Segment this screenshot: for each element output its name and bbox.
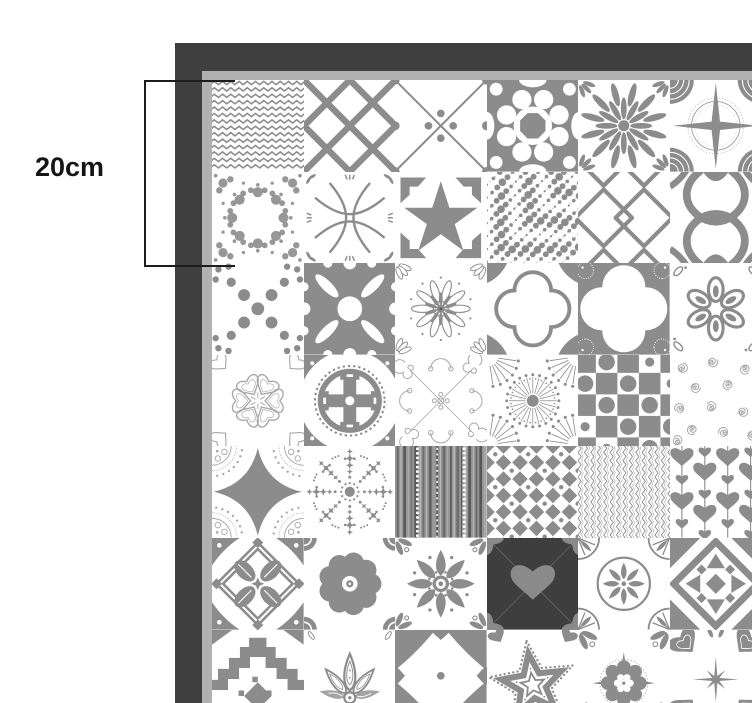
tile-star-ray-burst <box>304 446 396 538</box>
measurement-bracket <box>144 80 235 267</box>
tile-radial-dandelion <box>487 355 579 447</box>
tile-round-mandala <box>578 630 670 703</box>
tile-quatrefoil <box>487 263 579 355</box>
tile-ribbon-diamond <box>212 538 304 630</box>
tile-circle-kaleidoscope <box>487 80 579 172</box>
tile-bold-star <box>395 172 487 264</box>
tile-dark-heart <box>487 538 579 630</box>
tile-beaded-diagonals <box>487 172 579 264</box>
tile-curved-petal-cross <box>304 172 396 264</box>
measurement-label: 20cm <box>35 152 104 183</box>
tile-scattered-spirals <box>670 355 752 447</box>
tile-scalloped-flower <box>304 538 396 630</box>
tile-rosette-circle <box>578 538 670 630</box>
tile-petal-cross <box>578 263 670 355</box>
tile-sheet <box>212 80 752 703</box>
tile-loop-flower <box>670 263 752 355</box>
tile-stripe-barcode <box>395 446 487 538</box>
tile-diamond-lattice <box>304 80 396 172</box>
tile-diagonal-cross-dots <box>395 80 487 172</box>
tile-grid <box>212 80 752 703</box>
tile-ornate-diamond <box>212 446 304 538</box>
tile-compass-star <box>670 80 752 172</box>
tile-octagon-dot-grid <box>487 446 579 538</box>
tile-hanging-hearts <box>670 446 752 538</box>
tile-herringbone <box>578 446 670 538</box>
tile-double-diamond <box>578 172 670 264</box>
tile-hearts-sparkle <box>670 630 752 703</box>
tile-paisley-lily <box>304 630 396 703</box>
tile-flower-burst <box>395 263 487 355</box>
tile-geometric-diamond-star <box>670 538 752 630</box>
tile-checker-dots <box>578 355 670 447</box>
tile-arabesque-arch <box>212 630 304 703</box>
tile-petal-mandala <box>395 538 487 630</box>
product-illustration: 20cm <box>0 0 752 703</box>
tile-dotted-star <box>487 630 579 703</box>
tile-daisy-flower <box>578 80 670 172</box>
tile-heart-snowflake <box>212 355 304 447</box>
tile-filigree-swirls <box>395 355 487 447</box>
tile-dotted-x <box>212 263 304 355</box>
tile-corner-arc-flower <box>395 630 487 703</box>
tile-gear-ring <box>304 263 396 355</box>
tile-ogee-ikat <box>670 172 752 264</box>
tile-circle-cross-medallion <box>304 355 396 447</box>
